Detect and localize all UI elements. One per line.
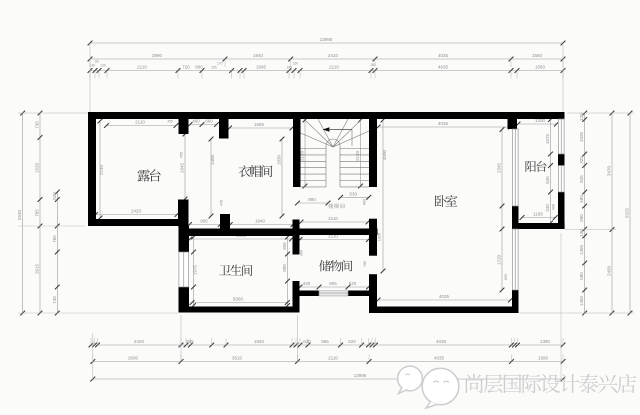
svg-text:1560: 1560 [532,53,543,58]
svg-text:600: 600 [504,274,508,280]
svg-text:1945: 1945 [179,162,184,173]
svg-text:455: 455 [167,120,173,124]
svg-text:2450: 2450 [607,265,612,276]
svg-text:1465: 1465 [579,295,584,306]
svg-text:785: 785 [52,235,57,243]
svg-text:480: 480 [552,204,556,210]
svg-text:845: 845 [579,175,584,183]
svg-text:1940: 1940 [255,219,266,224]
svg-text:1940: 1940 [253,53,264,58]
svg-text:1025: 1025 [579,131,584,142]
svg-text:2420: 2420 [134,339,145,344]
svg-text:730: 730 [35,121,40,129]
svg-text:740: 740 [52,296,57,304]
svg-text:130: 130 [100,64,106,68]
svg-text:5060: 5060 [233,297,244,302]
svg-text:340: 340 [545,204,550,212]
svg-text:3510: 3510 [232,356,243,361]
svg-text:4035: 4035 [438,53,449,58]
svg-text:800: 800 [282,264,287,272]
svg-text:2345: 2345 [497,162,502,173]
svg-text:580: 580 [579,272,584,280]
svg-text:1380: 1380 [540,339,551,344]
svg-text:520: 520 [52,192,57,200]
svg-text:905: 905 [329,281,337,286]
svg-text:3990: 3990 [152,53,163,58]
svg-text:13995: 13995 [354,373,367,378]
svg-text:1720: 1720 [497,254,502,265]
svg-text:1195: 1195 [533,212,543,217]
svg-text:2420: 2420 [131,209,142,214]
svg-text:1025: 1025 [378,233,382,241]
svg-text:120: 120 [579,113,584,121]
svg-text:180: 180 [370,63,376,67]
svg-text:2740: 2740 [99,164,104,175]
svg-text:860: 860 [363,199,367,205]
svg-text:2110: 2110 [329,65,339,70]
svg-text:170: 170 [217,62,223,66]
svg-text:5940: 5940 [17,209,22,220]
svg-text:2110: 2110 [135,120,145,125]
svg-text:460: 460 [192,119,200,124]
svg-text:630: 630 [303,339,311,344]
svg-text:860: 860 [195,65,203,70]
svg-text:780: 780 [363,261,367,267]
svg-text:1075: 1075 [545,133,550,144]
svg-text:5925: 5925 [625,207,630,218]
svg-text:1940: 1940 [254,339,265,344]
svg-text:2110: 2110 [328,216,338,221]
svg-text:1450: 1450 [579,244,584,255]
svg-text:845: 845 [545,176,550,184]
svg-text:890: 890 [308,197,316,202]
svg-text:80: 80 [95,60,99,64]
svg-text:720: 720 [182,65,190,70]
svg-text:4035: 4035 [436,339,447,344]
svg-text:455: 455 [180,152,184,158]
svg-text:2600: 2600 [128,356,139,361]
svg-text:530: 530 [350,192,358,197]
svg-text:785: 785 [35,209,40,217]
svg-text:1520: 1520 [35,162,40,173]
svg-text:620: 620 [348,339,356,344]
svg-text:1400: 1400 [210,154,215,165]
svg-text:605: 605 [282,242,287,250]
svg-text:150: 150 [293,62,299,66]
svg-text:265: 265 [211,66,217,70]
svg-text:1975: 1975 [192,264,197,275]
svg-text:445: 445 [220,200,224,206]
svg-text:965: 965 [321,339,329,344]
svg-text:130: 130 [579,229,584,237]
svg-text:905: 905 [200,219,208,224]
svg-text:3470: 3470 [607,165,612,176]
svg-text:680: 680 [579,214,584,222]
svg-text:4035: 4035 [434,356,445,361]
svg-text:245: 245 [287,66,293,70]
svg-text:13995: 13995 [320,37,333,42]
svg-text:4035: 4035 [439,294,450,299]
svg-text:2110: 2110 [328,356,338,361]
svg-text:905: 905 [186,339,194,344]
svg-text:360: 360 [300,250,304,256]
svg-text:1695: 1695 [254,122,265,127]
svg-text:1580: 1580 [538,356,549,361]
svg-text:4500: 4500 [382,149,387,160]
svg-text:430: 430 [303,281,311,286]
svg-text:2615: 2615 [35,263,40,274]
svg-text:620: 620 [349,281,357,286]
svg-text:1695: 1695 [256,65,267,70]
svg-text:480: 480 [579,195,584,203]
svg-text:2110: 2110 [137,65,147,70]
svg-text:4635: 4635 [438,65,449,70]
svg-text:1830: 1830 [277,154,282,165]
svg-text:325: 325 [579,156,584,164]
svg-text:2410: 2410 [328,53,339,58]
svg-text:1560: 1560 [535,65,546,70]
svg-text:4035: 4035 [438,121,449,126]
svg-text:660: 660 [205,119,213,124]
svg-text:2150: 2150 [355,150,360,161]
